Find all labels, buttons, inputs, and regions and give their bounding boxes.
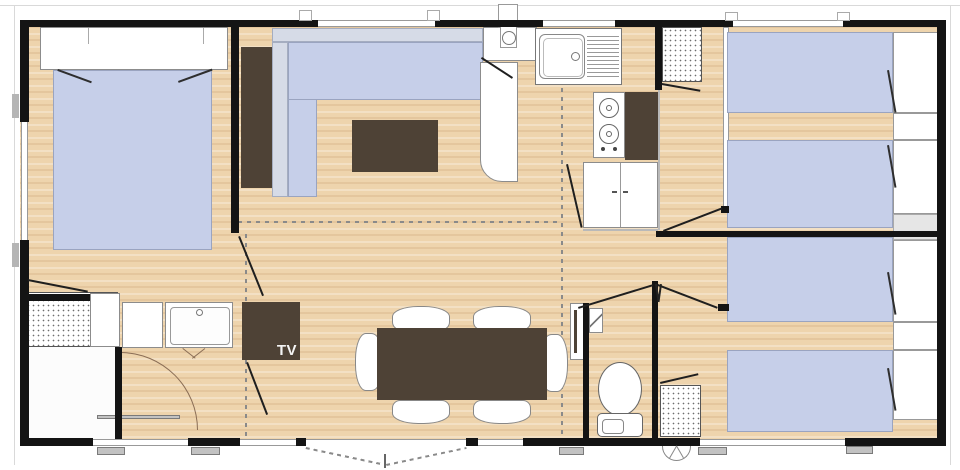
hall-cabinet-stripe xyxy=(574,310,577,353)
door-post xyxy=(466,438,478,446)
exterior-wall-bottom xyxy=(845,438,946,446)
wardrobe-icon xyxy=(241,47,272,188)
tv-unit-label: TV xyxy=(277,342,297,359)
exterior-wall-top xyxy=(615,20,733,27)
l-sofa-icon xyxy=(288,42,483,100)
drainer-icon xyxy=(587,36,619,80)
step-mat-icon xyxy=(97,447,125,455)
step-mat-icon xyxy=(846,446,873,454)
nightstand xyxy=(893,113,940,140)
toilet-icon xyxy=(598,362,642,416)
chair-icon xyxy=(392,306,450,330)
cabinet-handle xyxy=(623,191,628,193)
step-mat-icon xyxy=(698,447,727,455)
floorplan-canvas: TV xyxy=(0,0,960,470)
pillow-icon xyxy=(893,240,938,322)
headboard-divider xyxy=(203,28,204,44)
single-bed-icon xyxy=(727,32,893,113)
step-mat-icon xyxy=(559,447,584,455)
partition-thin-line xyxy=(583,229,658,231)
window-end-cap xyxy=(725,12,738,21)
window-icon xyxy=(543,20,615,27)
tall-kitchen-cabinet xyxy=(625,92,658,160)
entrance-double-door-icon xyxy=(306,447,387,466)
pillow-icon xyxy=(893,32,938,113)
vanity-icon xyxy=(90,293,120,347)
flue-outlet xyxy=(502,31,516,45)
vanity-icon xyxy=(122,302,163,348)
window-icon xyxy=(478,439,523,446)
pantry-shelf-icon xyxy=(662,27,702,82)
pillow-icon xyxy=(893,140,938,214)
step-mat-icon xyxy=(191,447,220,455)
entrance-double-door-icon xyxy=(386,447,467,466)
bathroom-floor xyxy=(22,347,116,440)
kitchen-east-wall xyxy=(655,20,662,90)
bedroom1-partition-wall xyxy=(231,20,239,233)
window-icon xyxy=(93,439,188,446)
window-icon xyxy=(700,439,845,446)
bedroom-divider-wall xyxy=(656,231,943,237)
cabinet-door-split xyxy=(620,163,621,227)
wc-east-wall xyxy=(652,281,658,444)
corner-basin-icon xyxy=(589,308,603,333)
pillow-icon xyxy=(893,350,938,420)
zone-dash-horizontal xyxy=(238,221,562,223)
wall-stub xyxy=(718,304,729,311)
dining-table-icon xyxy=(377,328,547,400)
exterior-wall-left xyxy=(20,240,29,446)
faucet-icon xyxy=(571,52,580,61)
exterior-wall-top xyxy=(435,20,543,27)
frame-line-top xyxy=(0,5,960,6)
bathroom-partition-wall xyxy=(20,294,90,301)
door-meeting-tick xyxy=(384,454,386,468)
cistern-button xyxy=(602,419,624,434)
faucet-icon xyxy=(196,309,203,316)
fridge-icon xyxy=(480,62,518,182)
chair-icon xyxy=(544,334,568,392)
exterior-wall-left xyxy=(20,20,29,122)
l-sofa-icon xyxy=(272,42,288,197)
burner-centre xyxy=(606,131,612,137)
single-bed-icon xyxy=(727,350,893,432)
window-icon xyxy=(318,20,435,27)
chair-icon xyxy=(473,306,531,330)
pantry-shelf-icon xyxy=(660,385,701,437)
window-end-cap xyxy=(837,12,850,21)
entrance-threshold xyxy=(306,439,466,446)
nightstand xyxy=(893,322,940,350)
single-bed-icon xyxy=(727,140,893,228)
hob-knob xyxy=(613,147,617,151)
window-end-cap xyxy=(427,10,440,21)
exterior-wall-top xyxy=(20,20,318,27)
partition-thin-line xyxy=(658,90,660,230)
headboard-divider xyxy=(88,28,89,44)
door-post xyxy=(296,438,306,446)
single-bed-icon xyxy=(727,237,893,322)
double-bed-icon xyxy=(53,70,212,250)
l-sofa-icon xyxy=(272,28,483,42)
chair-icon xyxy=(473,400,531,424)
burner-centre xyxy=(606,105,612,111)
shower-step-bar xyxy=(97,415,180,419)
headboard-shelf xyxy=(40,27,228,70)
exterior-wall-bottom xyxy=(188,438,240,446)
window-icon xyxy=(240,439,296,446)
coffee-table-icon xyxy=(352,120,438,172)
window-marker xyxy=(12,94,19,118)
window-icon xyxy=(733,20,843,27)
window-marker xyxy=(12,243,19,267)
wc-west-wall xyxy=(583,303,589,444)
wall-stub xyxy=(721,206,729,213)
window-end-cap xyxy=(299,10,312,21)
tv-unit-icon: TV xyxy=(242,302,300,360)
cabinet-handle xyxy=(612,191,617,193)
frame-line-left xyxy=(14,5,15,465)
exterior-wall-bottom xyxy=(20,438,93,446)
frame-line-right xyxy=(950,5,951,465)
hob-knob xyxy=(601,147,605,151)
exterior-wall-bottom xyxy=(523,438,700,446)
window-icon xyxy=(21,122,28,240)
chair-icon xyxy=(355,333,379,391)
bathroom-east-wall xyxy=(115,347,122,444)
chair-icon xyxy=(392,400,450,424)
exterior-wall-top xyxy=(843,20,946,27)
